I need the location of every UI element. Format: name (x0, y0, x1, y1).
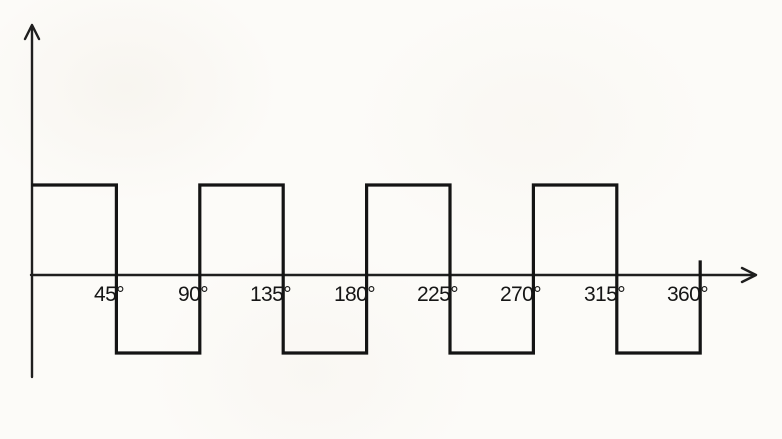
x-tick-label-360: 360° (648, 284, 708, 305)
x-tick-label-135: 135° (231, 284, 291, 305)
x-tick-label-90: 90° (148, 284, 208, 305)
x-tick-label-45: 45° (64, 284, 124, 305)
x-tick-label-180: 180° (315, 284, 375, 305)
x-tick-label-225: 225° (398, 284, 458, 305)
x-tick-label-270: 270° (481, 284, 541, 305)
x-tick-label-315: 315° (565, 284, 625, 305)
square-wave-figure: 45° 90° 135° 180° 225° 270° 315° 360° (0, 0, 782, 439)
waveform-plot (0, 0, 782, 439)
square-wave-line (33, 185, 700, 353)
